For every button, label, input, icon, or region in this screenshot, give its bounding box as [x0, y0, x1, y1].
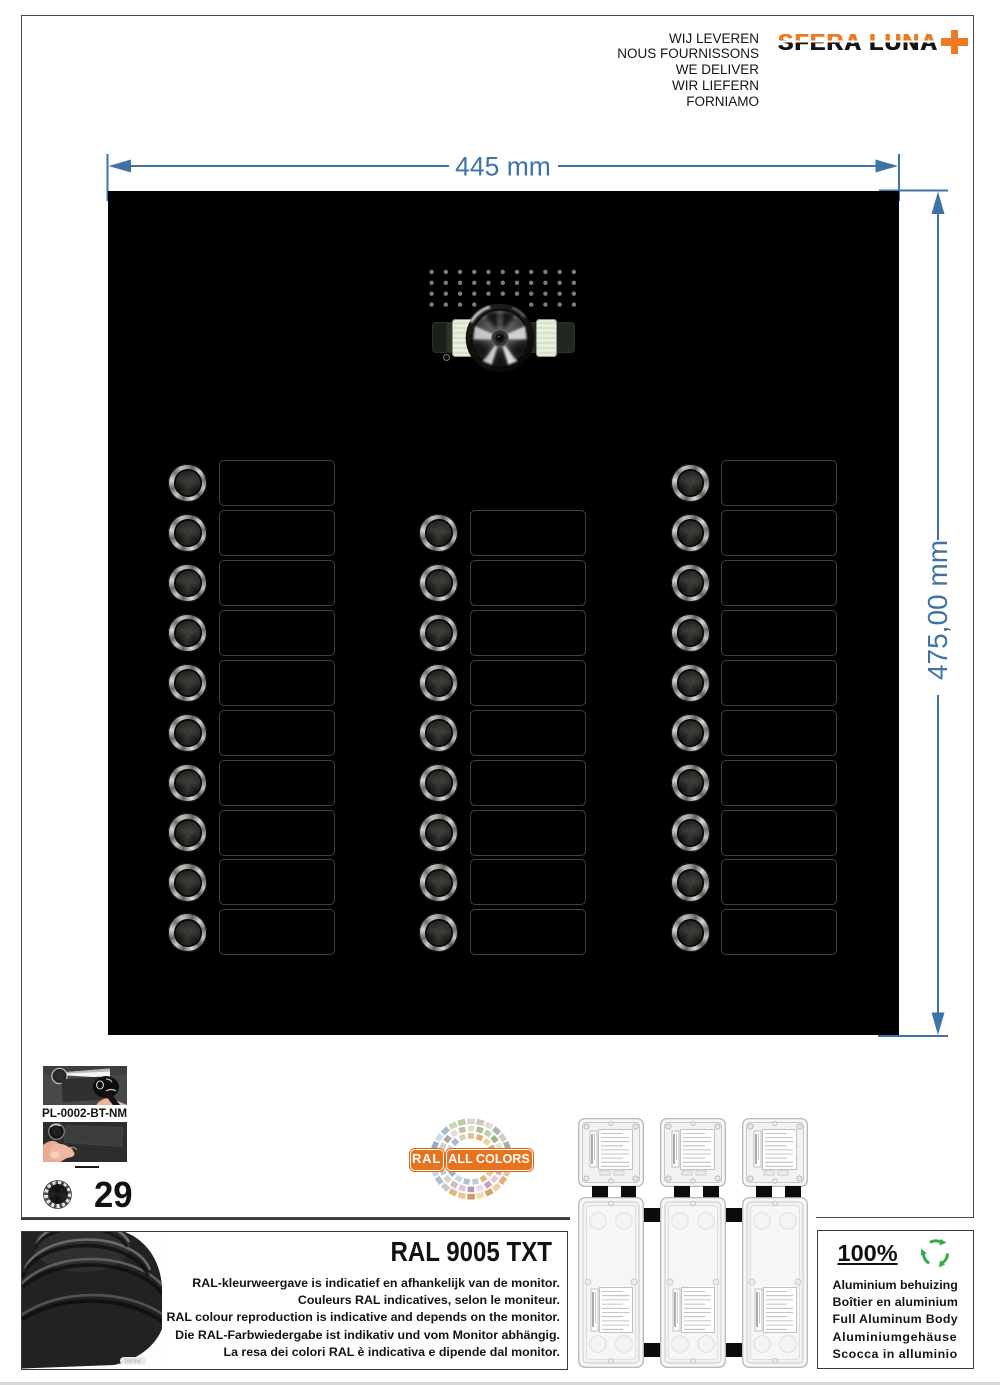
svg-text:bticino: bticino	[124, 1359, 140, 1365]
